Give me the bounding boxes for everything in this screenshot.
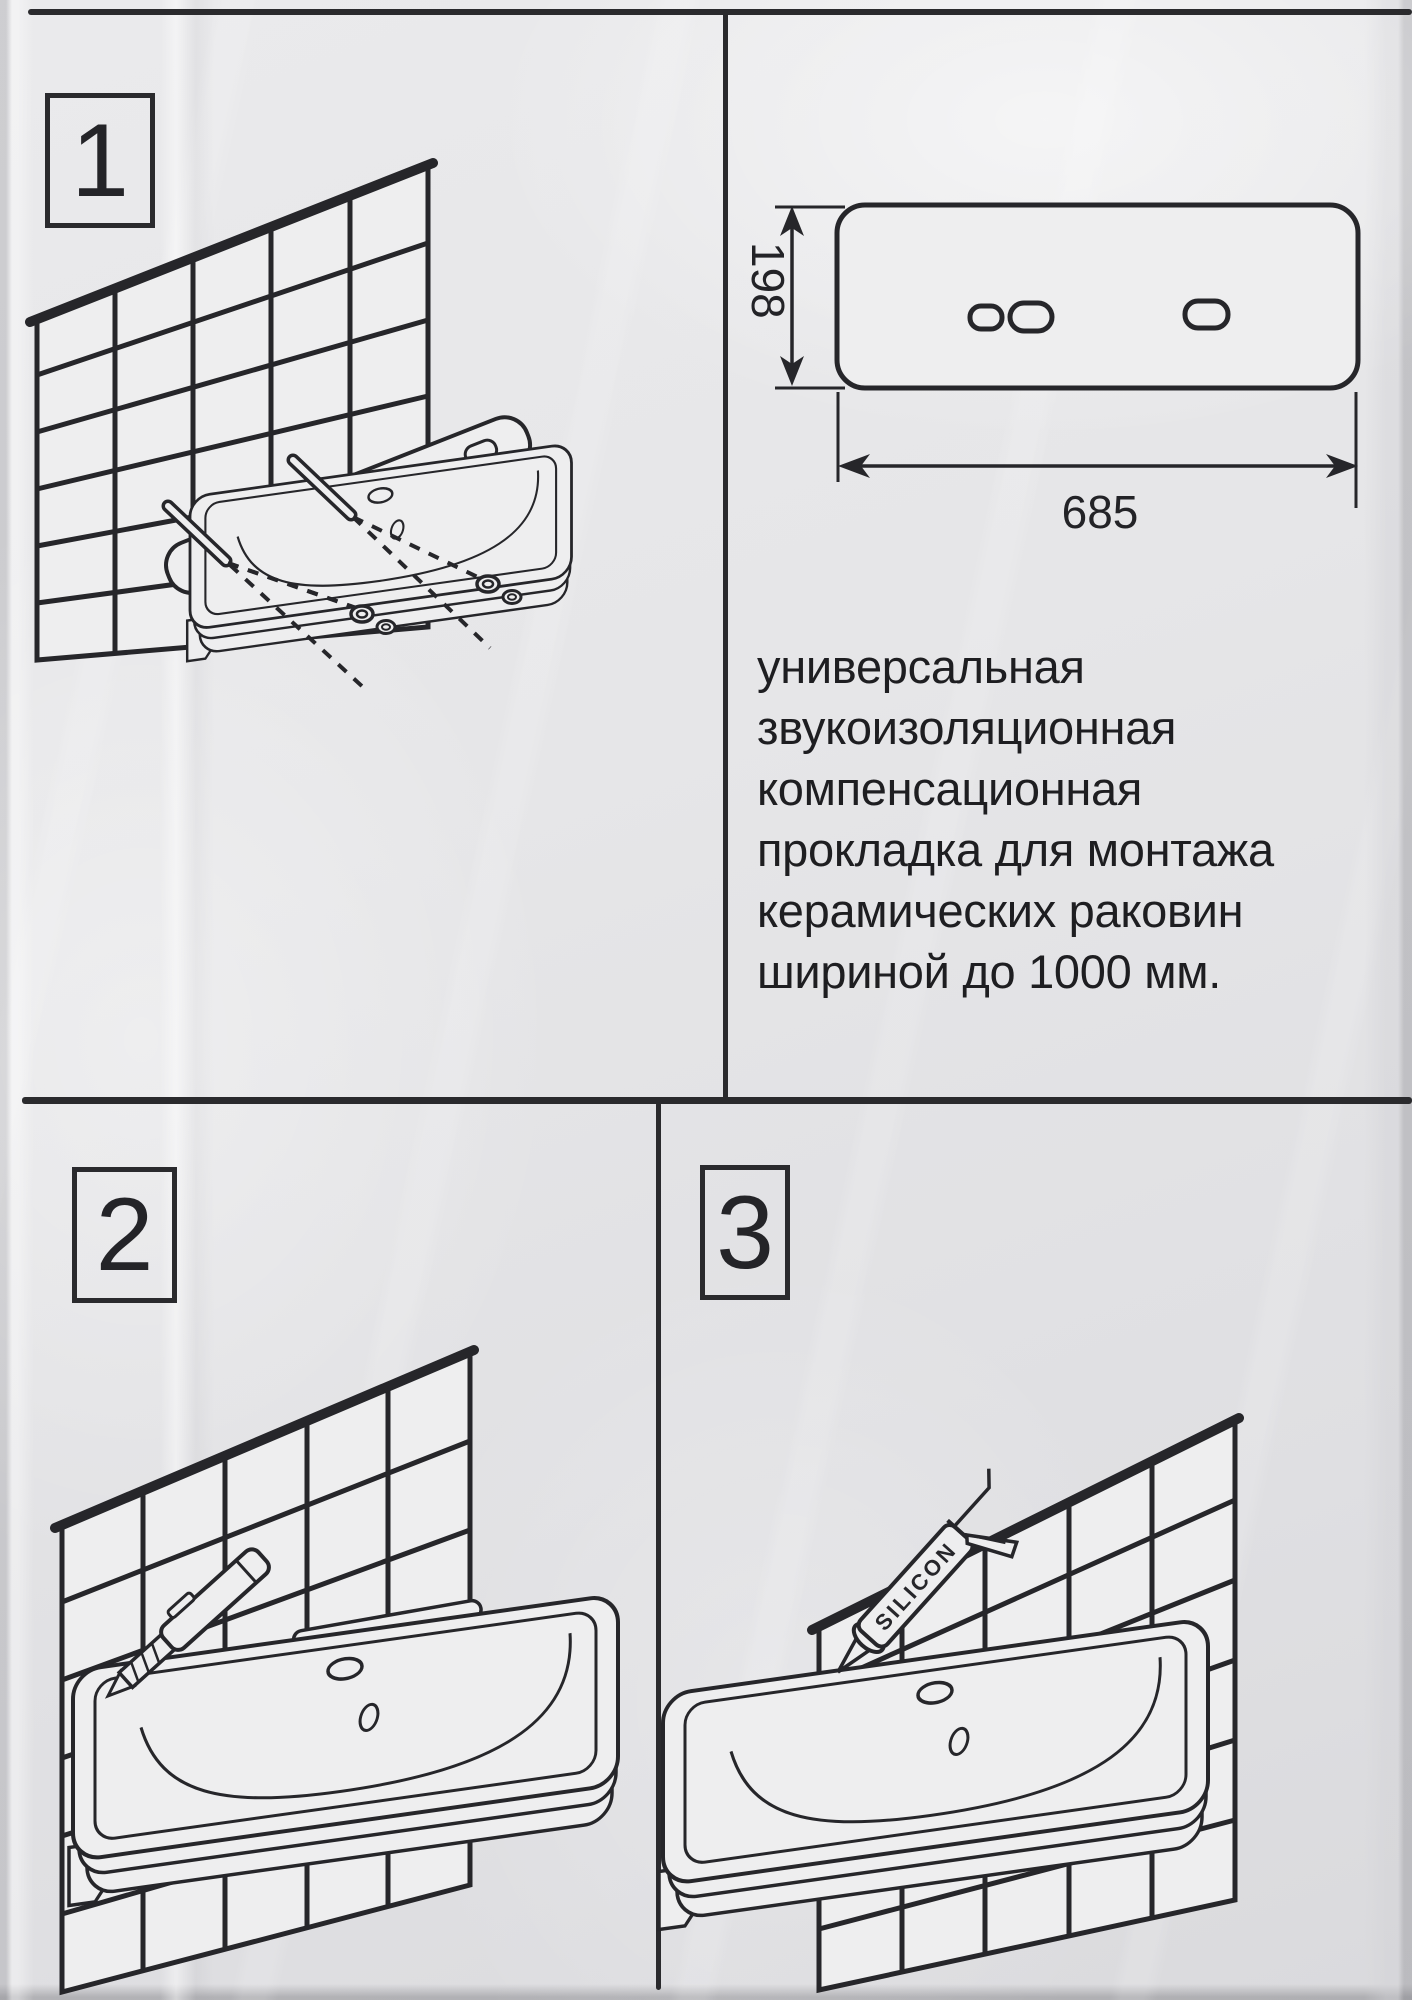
- gasket-outline: [837, 205, 1358, 388]
- description-line: керамических раковин: [757, 880, 1397, 941]
- sheet-top-border: [28, 9, 1412, 15]
- product-description: универсальная звукоизоляционная компенса…: [757, 636, 1397, 1002]
- width-dimension: 685: [838, 392, 1358, 538]
- divider-vertical-top: [723, 12, 728, 1100]
- step-2-illustration: [18, 1140, 652, 2000]
- description-line: компенсационная: [757, 758, 1397, 819]
- description-line: прокладка для монтажа: [757, 819, 1397, 880]
- photographed-instruction-sheet: { "sheet": { "steps": [ {"number": "1", …: [0, 0, 1412, 2000]
- description-line: звукоизоляционная: [757, 697, 1397, 758]
- step-1-illustration: [18, 150, 580, 862]
- step-3-illustration: SILICON: [662, 1140, 1412, 2000]
- gasket-dimension-drawing: 198 685: [730, 150, 1410, 580]
- height-label: 198: [742, 242, 794, 319]
- width-label: 685: [1062, 486, 1139, 538]
- description-line: универсальная: [757, 636, 1397, 697]
- description-line: шириной до 1000 мм.: [757, 941, 1397, 1002]
- divider-vertical-bottom: [656, 1102, 661, 1990]
- height-dimension: 198: [742, 206, 845, 388]
- divider-horizontal: [22, 1097, 1412, 1104]
